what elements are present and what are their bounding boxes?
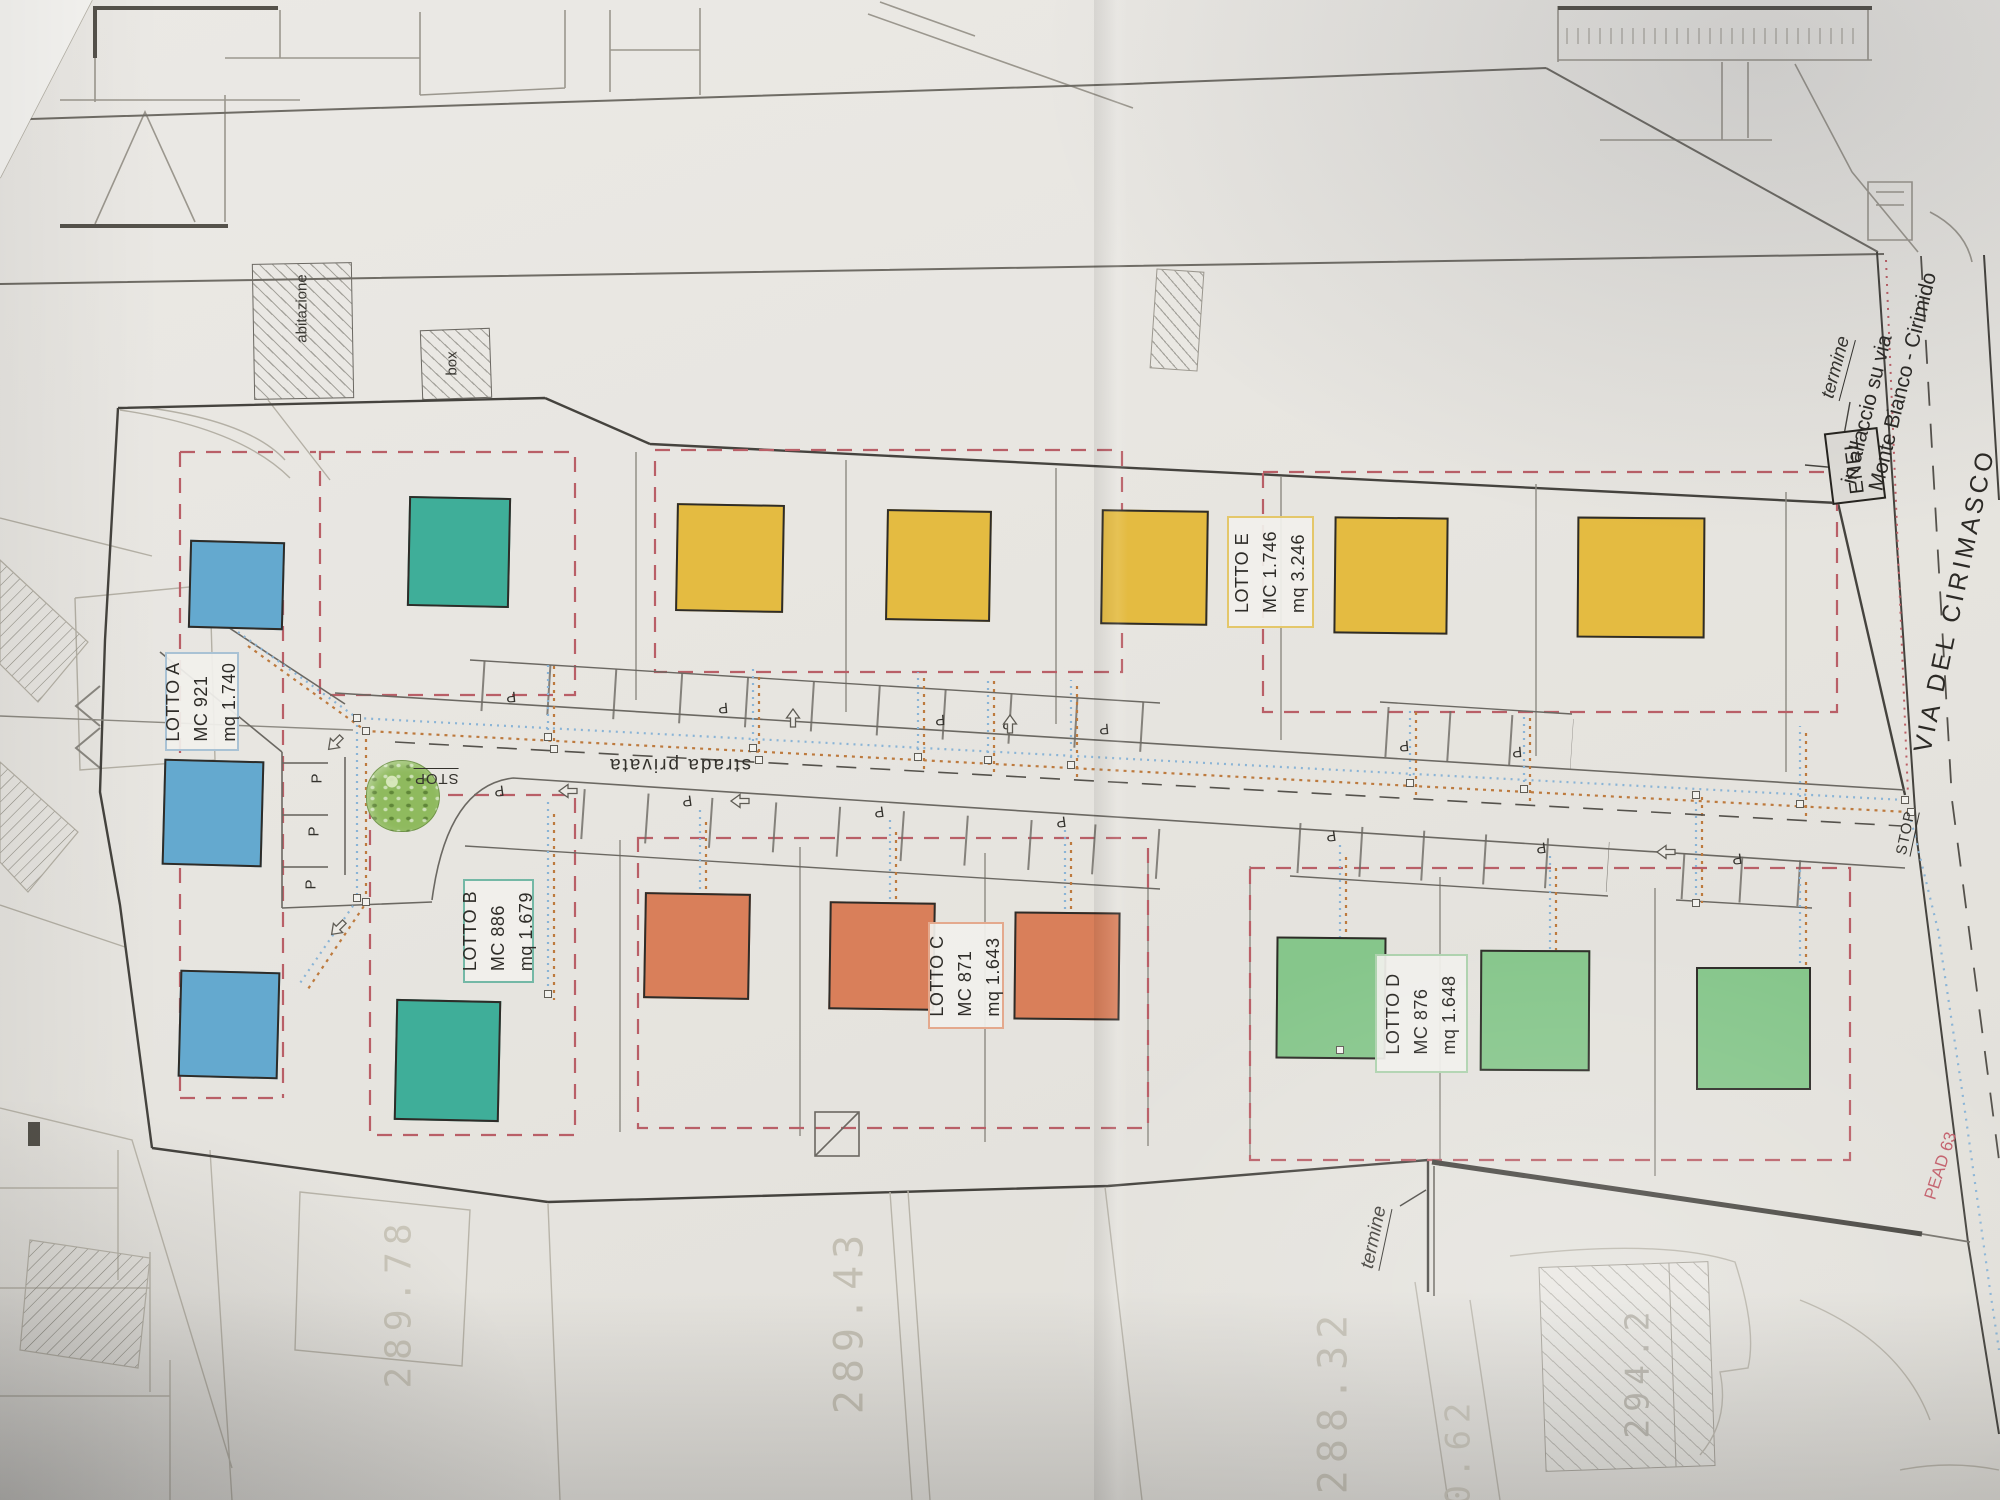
utility-node <box>984 756 992 764</box>
lot-title: LOTTO E <box>1229 531 1257 613</box>
lot-building-square <box>1696 967 1811 1090</box>
lot-label: LOTTO A MC 921 mq 1.740 <box>165 652 239 751</box>
utility-node <box>1796 800 1804 808</box>
utility-node <box>914 753 922 761</box>
elevation-number: 288.32 <box>1310 1308 1356 1495</box>
utility-node <box>550 745 558 753</box>
parking-p-label: P <box>1098 720 1109 738</box>
lot-building-square <box>1275 937 1386 1060</box>
lot-building-square <box>188 540 285 630</box>
elevation-number: 290.62 <box>1438 1396 1478 1500</box>
utility-node <box>544 733 552 741</box>
parking-p-label: P <box>934 711 945 729</box>
lot-building-square <box>407 496 511 608</box>
elevation-number: 289.43 <box>826 1228 872 1415</box>
lot-building-square <box>885 509 992 622</box>
parking-p-label: P <box>306 826 323 836</box>
abitazione-label: abitazione <box>294 274 311 342</box>
utility-node <box>353 714 361 722</box>
lot-building-square <box>1013 911 1120 1020</box>
utility-arrow-icon <box>729 793 751 809</box>
lot-label-text: LOTTO E MC 1.746 mq 3.246 <box>1229 531 1313 613</box>
parking-p-label: P <box>717 699 728 717</box>
lot-title: LOTTO C <box>924 935 952 1016</box>
utility-arrow-icon <box>1002 713 1018 735</box>
utility-node <box>1692 791 1700 799</box>
lot-title: LOTTO B <box>457 891 485 971</box>
parking-p-label: P <box>681 791 693 809</box>
parking-p-label: P <box>1535 838 1547 856</box>
lot-mc: MC 1.746 <box>1257 531 1285 613</box>
parking-p-label: P <box>1055 812 1067 830</box>
box-label: box <box>444 351 461 375</box>
lot-mc: MC 921 <box>188 662 216 741</box>
lot-title: LOTTO D <box>1380 973 1408 1054</box>
lot-mc: MC 871 <box>952 935 980 1016</box>
lot-mc: MC 876 <box>1408 973 1436 1054</box>
lot-mq: mq 1.648 <box>1435 973 1463 1054</box>
utility-arrow-icon <box>557 783 579 799</box>
elevation-number: 294.2 <box>1618 1304 1657 1438</box>
parking-p-label: P <box>1731 849 1743 867</box>
utility-node <box>1336 1046 1344 1054</box>
lot-label-text: LOTTO D MC 876 mq 1.648 <box>1380 973 1464 1054</box>
parking-p-label: P <box>1398 737 1409 755</box>
plan-linework <box>0 0 2000 1500</box>
lot-mc: MC 886 <box>485 891 513 971</box>
stop-marking-left: STOP <box>414 768 459 787</box>
lot-label: LOTTO B MC 886 mq 1.679 <box>463 879 534 983</box>
lot-building-square <box>1577 517 1706 639</box>
strada-privata-label: strada privata <box>608 753 751 775</box>
parking-p-label: P <box>303 879 320 889</box>
utility-arrow-icon <box>785 707 801 729</box>
lot-label: LOTTO E MC 1.746 mq 3.246 <box>1227 516 1314 628</box>
lot-building-square <box>675 503 785 613</box>
lot-building-square <box>1333 516 1448 634</box>
lot-building-square <box>828 901 935 1010</box>
parking-p-label: P <box>1325 826 1337 844</box>
lot-building-square <box>1480 950 1591 1072</box>
utility-node <box>749 744 757 752</box>
utility-arrow-icon <box>1655 844 1677 860</box>
lot-mq: mq 3.246 <box>1284 531 1312 613</box>
lot-building-square <box>1100 509 1209 625</box>
utility-node <box>544 990 552 998</box>
utility-node <box>1692 899 1700 907</box>
lot-label-text: LOTTO B MC 886 mq 1.679 <box>457 891 541 971</box>
paper-corner <box>0 0 92 178</box>
lot-mq: mq 1.643 <box>980 935 1008 1016</box>
lot-mq: mq 1.740 <box>216 662 244 741</box>
utility-node <box>362 898 370 906</box>
lot-label: LOTTO D MC 876 mq 1.648 <box>1375 954 1468 1073</box>
lot-title: LOTTO A <box>160 662 188 741</box>
utility-node <box>1901 796 1909 804</box>
utility-node <box>755 756 763 764</box>
lot-building-square <box>643 892 751 1000</box>
elevation-number: 289.78 <box>379 1216 420 1388</box>
lot-building-square <box>394 999 502 1122</box>
parking-p-label: P <box>1511 743 1522 761</box>
parking-p-label: P <box>493 781 505 799</box>
lot-label: LOTTO C MC 871 mq 1.643 <box>928 922 1004 1029</box>
site-plan-photo: abitazione box LOTTO A MC 921 mq 1.740 L… <box>0 0 2000 1500</box>
lot-building-square <box>162 759 265 868</box>
lot-mq: mq 1.679 <box>512 891 540 971</box>
lot-label-text: LOTTO C MC 871 mq 1.643 <box>924 935 1008 1016</box>
parking-p-label: P <box>873 802 885 820</box>
utility-node <box>1067 761 1075 769</box>
utility-node <box>1520 785 1528 793</box>
utility-node <box>362 727 370 735</box>
lot-building-square <box>178 970 281 1080</box>
parking-p-label: P <box>505 688 516 706</box>
utility-node <box>1406 779 1414 787</box>
parking-p-label: P <box>309 773 326 783</box>
lot-label-text: LOTTO A MC 921 mq 1.740 <box>160 662 244 741</box>
utility-node <box>353 894 361 902</box>
